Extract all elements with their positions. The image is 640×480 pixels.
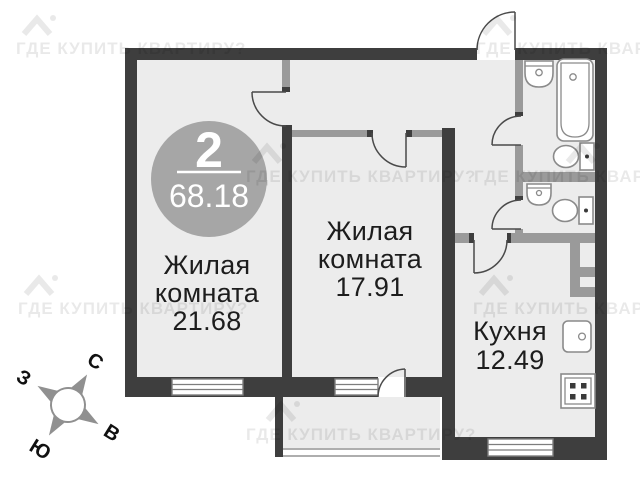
compass-west-label: З (12, 366, 34, 391)
balcony-glazing (283, 448, 440, 457)
badge-rooms-count: 2 (195, 122, 223, 178)
badge-total-area: 68.18 (169, 178, 249, 214)
room-name-line: Кухня (452, 317, 568, 346)
balcony-side-wall (275, 395, 283, 457)
area-badge: 2 68.18 (151, 121, 267, 237)
sink-icon (525, 61, 553, 87)
toilet-icon (553, 197, 594, 224)
room-label-living-1: Жилая комната 21.68 (128, 251, 286, 335)
bathtub-icon (557, 59, 593, 141)
floor-plan-image: 2 68.18 С В Ю З Жилая комната 21.68 Жила… (0, 0, 640, 480)
toilet-icon (554, 143, 595, 170)
sink-icon (527, 184, 551, 205)
entrance-opening (477, 48, 515, 60)
room-name-line: комната (293, 245, 447, 273)
room-name-line: Жилая (293, 217, 447, 245)
compass-south-label: Ю (25, 435, 54, 465)
window (172, 379, 243, 395)
balcony-door-opening (378, 377, 406, 397)
room-area: 21.68 (128, 307, 286, 335)
entrance-door-swing (477, 12, 515, 50)
window (488, 439, 553, 456)
compass-north-label: С (83, 349, 107, 375)
room-area: 17.91 (293, 273, 447, 301)
room-label-kitchen: Кухня 12.49 (452, 317, 568, 375)
compass-east-label: В (100, 420, 124, 446)
room-name-line: Жилая (128, 251, 286, 279)
stove-icon (561, 374, 595, 408)
room-label-living-2: Жилая комната 17.91 (293, 217, 447, 301)
balcony (283, 397, 440, 450)
window (335, 379, 378, 395)
room-area: 12.49 (452, 346, 568, 375)
room-name-line: комната (128, 279, 286, 307)
